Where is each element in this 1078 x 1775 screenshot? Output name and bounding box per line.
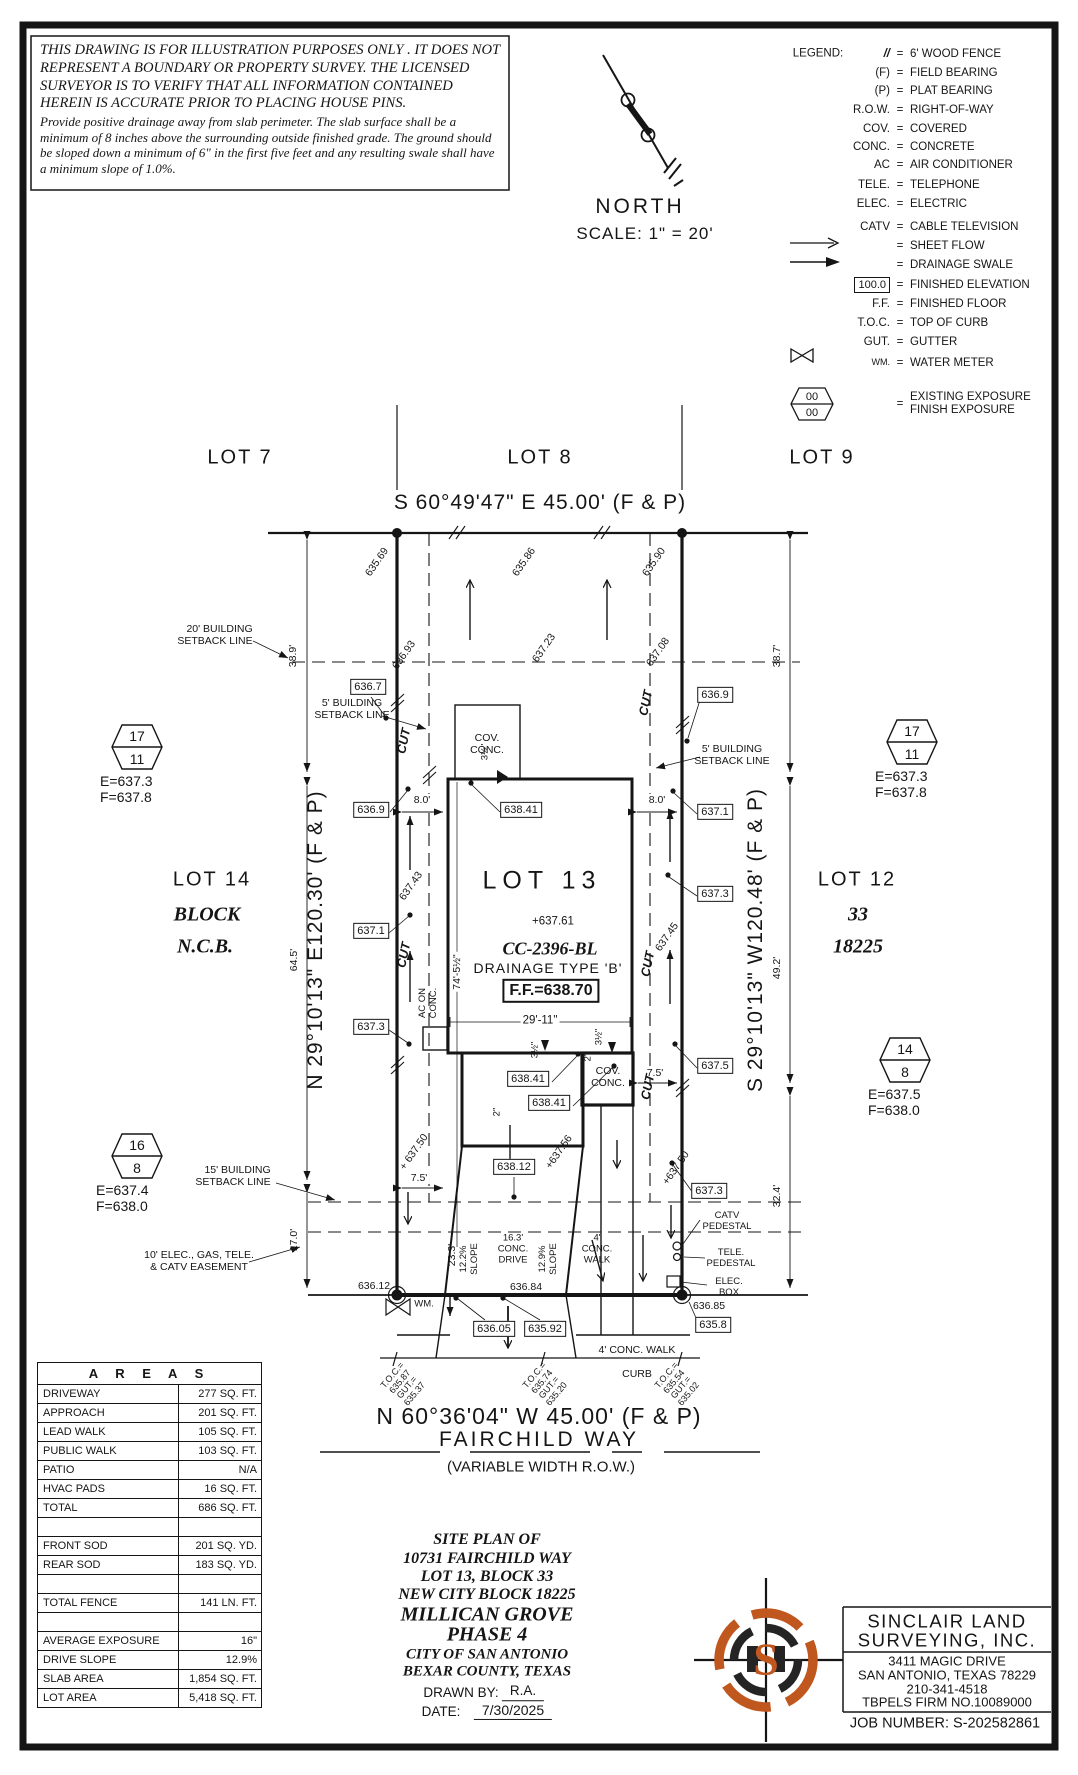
table-row: APPROACH201 SQ. FT. xyxy=(37,1404,262,1423)
legend-row: CATV=CABLE TELEVISION xyxy=(790,218,1070,236)
exposure-bottom: 8 xyxy=(133,1160,141,1176)
slope-left: 12.2%SLOPE xyxy=(459,1243,481,1275)
legend-row: //=6' WOOD FENCE xyxy=(790,45,1070,63)
table-row: LOT AREA5,418 SQ. FT. xyxy=(37,1689,262,1708)
legend-row: (P)=PLAT BEARING xyxy=(790,82,1070,100)
water-meter-icon xyxy=(790,348,814,363)
lot13-spot-elevation: +637.61 xyxy=(532,915,574,928)
exposure-top: 14 xyxy=(897,1041,913,1057)
street-row-note: (VARIABLE WIDTH R.O.W.) xyxy=(447,1458,635,1475)
lot12-label: LOT 12 xyxy=(818,869,896,892)
street-name: FAIRCHILD WAY xyxy=(439,1428,639,1452)
elevation-box: 636.9 xyxy=(353,802,389,818)
elec-box-label: ELEC.BOX xyxy=(715,1277,742,1299)
north-arrow-icon xyxy=(603,55,683,186)
legend-row-drainage-swale: =DRAINAGE SWALE xyxy=(790,256,1070,274)
exposure-bottom: 11 xyxy=(905,746,920,762)
table-row: REAR SOD183 SQ. YD. xyxy=(37,1556,262,1575)
elevation-box: 637.3 xyxy=(697,886,733,902)
tele-pedestal-label: TELE.PEDESTAL xyxy=(707,1248,756,1270)
title-line: SITE PLAN OF xyxy=(433,1531,541,1549)
dimension-lines xyxy=(307,540,790,1288)
dim-29-11: 29'-11" xyxy=(521,1014,560,1027)
firm-name-line2: SURVEYING, INC. xyxy=(858,1629,1036,1650)
areas-table-title: A R E A S xyxy=(37,1362,262,1385)
firm-license: TBPELS FIRM NO.10089000 xyxy=(862,1696,1032,1711)
setback-5-east-label: 5' BUILDINGSETBACK LINE xyxy=(694,743,769,767)
svg-text:00: 00 xyxy=(806,391,818,403)
table-row-blank xyxy=(37,1575,262,1594)
conc-drive-label: 16.3'CONC.DRIVE xyxy=(498,1234,529,1267)
exposure-top: 17 xyxy=(129,728,145,744)
step-height-label: 3½" xyxy=(595,1029,606,1046)
exposure-top: 17 xyxy=(904,723,920,739)
table-row: FRONT SOD201 SQ. YD. xyxy=(37,1537,262,1556)
legend-row: ELEC.=ELECTRIC xyxy=(790,195,1070,213)
catv-pedestal-label: CATVPEDESTAL xyxy=(703,1211,752,1233)
finish-exposure-value: F=638.0 xyxy=(96,1198,148,1214)
elevation-box: 637.3 xyxy=(353,1019,389,1035)
lot13-label: LOT 13 xyxy=(483,867,602,896)
dim-74-5: 74'-5½" xyxy=(451,952,463,992)
dim-64-5: 64.5' xyxy=(288,949,300,971)
dim-23-3: 23.3' xyxy=(446,1244,458,1266)
water-meter-label: WM. xyxy=(414,1300,434,1311)
dim-8-0-west: 8.0' xyxy=(412,794,433,806)
public-walk-label: 4' CONC. WALK xyxy=(599,1344,676,1356)
elevation-box: 637.1 xyxy=(353,923,389,939)
easement-label: 10' ELEC., GAS, TELE.& CATV EASEMENT xyxy=(144,1249,254,1273)
slope-right: 12.9%SLOPE xyxy=(538,1243,560,1275)
lot8-label: LOT 8 xyxy=(507,447,572,470)
title-line: NEW CITY BLOCK 18225 xyxy=(398,1586,575,1604)
disclaimer-note: Provide positive drainage away from slab… xyxy=(40,114,502,176)
table-row: DRIVEWAY277 SQ. FT. xyxy=(37,1385,262,1404)
lot7-label: LOT 7 xyxy=(207,447,272,470)
elevation-box: 636.9 xyxy=(697,687,733,703)
title-line: CITY OF SAN ANTONIO xyxy=(406,1647,568,1664)
table-row: PUBLIC WALK103 SQ. FT. xyxy=(37,1442,262,1461)
west-bearing: N 29°10'13" E120.30' (F & P) xyxy=(304,790,328,1089)
legend-row: CONC.=CONCRETE xyxy=(790,138,1070,156)
step-height-label: 2" xyxy=(493,1108,504,1117)
existing-exposure-value: E=637.3 xyxy=(875,768,928,784)
title-line: LOT 13, BLOCK 33 xyxy=(421,1568,553,1586)
east-bearing: S 29°10'13" W120.48' (F & P) xyxy=(744,788,768,1092)
table-row: DRIVE SLOPE12.9% xyxy=(37,1651,262,1670)
legend-row: F.F.=FINISHED FLOOR xyxy=(790,295,1070,313)
table-row: TOTAL FENCE141 LN. FT. xyxy=(37,1594,262,1613)
elevation-box: 638.41 xyxy=(507,1071,549,1087)
legend-row-water-meter: WM.=WATER METER xyxy=(790,348,1070,378)
table-row-blank xyxy=(37,1518,262,1537)
table-row-blank xyxy=(37,1613,262,1632)
table-row: PATION/A xyxy=(37,1461,262,1480)
site-plan-sheet: THIS DRAWING IS FOR ILLUSTRATION PURPOSE… xyxy=(0,0,1078,1775)
drawn-by-label: DRAWN BY: xyxy=(423,1685,498,1701)
ncb-label: N.C.B. xyxy=(177,936,233,959)
elevation-box: 635.92 xyxy=(524,1321,566,1337)
legend-row-sheet-flow: =SHEET FLOW xyxy=(790,237,1070,255)
title-line: BEXAR COUNTY, TEXAS xyxy=(403,1664,571,1681)
table-row: HVAC PADS16 SQ. FT. xyxy=(37,1480,262,1499)
front-bearing: N 60°36'04" W 45.00' (F & P) xyxy=(376,1403,701,1429)
step-height-label: 3½" xyxy=(531,1042,542,1059)
exposure-top: 16 xyxy=(129,1137,145,1153)
dim-38-7: 38.7' xyxy=(771,645,783,667)
finish-exposure-value: F=637.8 xyxy=(875,784,927,800)
elevation-box: 637.5 xyxy=(697,1058,733,1074)
spot-elevation: 636.84 xyxy=(510,1281,542,1293)
ncb-number: 18225 xyxy=(833,936,883,959)
elevation-box: 636.05 xyxy=(473,1321,515,1337)
legend-row: R.O.W.=RIGHT-OF-WAY xyxy=(790,101,1070,119)
curb-label: CURB xyxy=(622,1368,652,1380)
svg-text:00: 00 xyxy=(806,407,818,419)
dim-7-5-west: 7.5' xyxy=(409,1172,430,1184)
elevation-box: 638.12 xyxy=(493,1159,535,1175)
title-line: 10731 FAIRCHILD WAY xyxy=(403,1550,571,1568)
legend-row: COV.=COVERED xyxy=(790,120,1070,138)
areas-table: A R E A S DRIVEWAY277 SQ. FT. APPROACH20… xyxy=(37,1362,262,1708)
phase-label: PHASE 4 xyxy=(447,1624,528,1647)
legend-row: (F)=FIELD BEARING xyxy=(790,64,1070,82)
elevation-box: 635.8 xyxy=(695,1317,731,1333)
ac-on-conc: AC ONCONC. xyxy=(418,988,440,1019)
block-number: 33 xyxy=(848,904,868,927)
existing-exposure-value: E=637.5 xyxy=(868,1086,921,1102)
lot13-cc-number: CC-2396-BL xyxy=(502,939,597,960)
legend-row: T.O.C.=TOP OF CURB xyxy=(790,314,1070,332)
setback-15-label: 15' BUILDINGSETBACK LINE xyxy=(195,1164,270,1188)
dim-17-0: 17.0' xyxy=(288,1229,300,1251)
setback-5-west-label: 5' BUILDINGSETBACK LINE xyxy=(314,697,389,721)
job-number: JOB NUMBER: S-202582861 xyxy=(850,1716,1040,1733)
dim-32-4: 32.4' xyxy=(771,1185,783,1207)
finish-exposure-value: F=638.0 xyxy=(868,1102,920,1118)
elevation-box: 638.41 xyxy=(500,802,542,818)
north-label: NORTH xyxy=(595,195,684,219)
setback-20-label: 20' BUILDINGSETBACK LINE xyxy=(177,623,252,647)
spot-elevation: 636.12 xyxy=(358,1280,390,1292)
lot9-label: LOT 9 xyxy=(789,447,854,470)
table-row: SLAB AREA1,854 SQ. FT. xyxy=(37,1670,262,1689)
step-height-label: 3½" xyxy=(481,744,492,761)
legend-row-exposure: 0000=EXISTING EXPOSUREFINISH EXPOSURE xyxy=(790,386,1070,422)
finished-elevation-symbol: 100.0 xyxy=(854,277,890,293)
exposure-bottom: 11 xyxy=(130,751,145,767)
dim-49-2: 49.2' xyxy=(771,957,783,979)
rear-bearing: S 60°49'47" E 45.00' (F & P) xyxy=(394,491,686,515)
table-row: TOTAL686 SQ. FT. xyxy=(37,1499,262,1518)
disclaimer-main: THIS DRAWING IS FOR ILLUSTRATION PURPOSE… xyxy=(40,42,502,113)
elevation-box: 637.1 xyxy=(697,804,733,820)
existing-exposure-value: E=637.4 xyxy=(96,1182,149,1198)
elevation-box: 637.3 xyxy=(691,1183,727,1199)
scale-label: SCALE: 1" = 20' xyxy=(576,224,713,244)
exposure-bottom: 8 xyxy=(901,1064,909,1080)
conc-walk-label: 4'CONC.WALK xyxy=(582,1234,613,1267)
table-row: LEAD WALK105 SQ. FT. xyxy=(37,1423,262,1442)
date-label: DATE: xyxy=(422,1704,461,1720)
drawn-by-value: R.A. xyxy=(502,1683,544,1701)
table-row: AVERAGE EXPOSURE16" xyxy=(37,1632,262,1651)
cov-conc-porch: COV.CONC. xyxy=(591,1065,625,1089)
dim-8-0-east: 8.0' xyxy=(647,794,668,806)
legend-row: TELE.=TELEPHONE xyxy=(790,176,1070,194)
existing-exposure-value: E=637.3 xyxy=(100,773,153,789)
lot13-drainage-type: DRAINAGE TYPE 'B' xyxy=(474,960,623,976)
elevation-box: 636.7 xyxy=(350,679,386,695)
date-value: 7/30/2025 xyxy=(474,1702,552,1720)
elevation-box: 638.41 xyxy=(528,1095,570,1111)
lot14-label: LOT 14 xyxy=(173,869,251,892)
exposure-hexagon-icon: 0000 xyxy=(790,387,834,421)
dim-38-9: 38.9' xyxy=(287,645,299,667)
spot-elevation: 636.85 xyxy=(693,1300,725,1312)
finish-exposure-value: F=637.8 xyxy=(100,789,152,805)
logo-letter: S xyxy=(753,1634,779,1687)
step-height-label: 2" xyxy=(584,1053,595,1062)
finished-floor-elevation: F.F.=638.70 xyxy=(502,979,599,1003)
legend-row-finished-elev: 100.0=FINISHED ELEVATION xyxy=(790,276,1070,294)
legend-row: AC=AIR CONDITIONER xyxy=(790,156,1070,174)
block-label: BLOCK xyxy=(174,904,241,927)
